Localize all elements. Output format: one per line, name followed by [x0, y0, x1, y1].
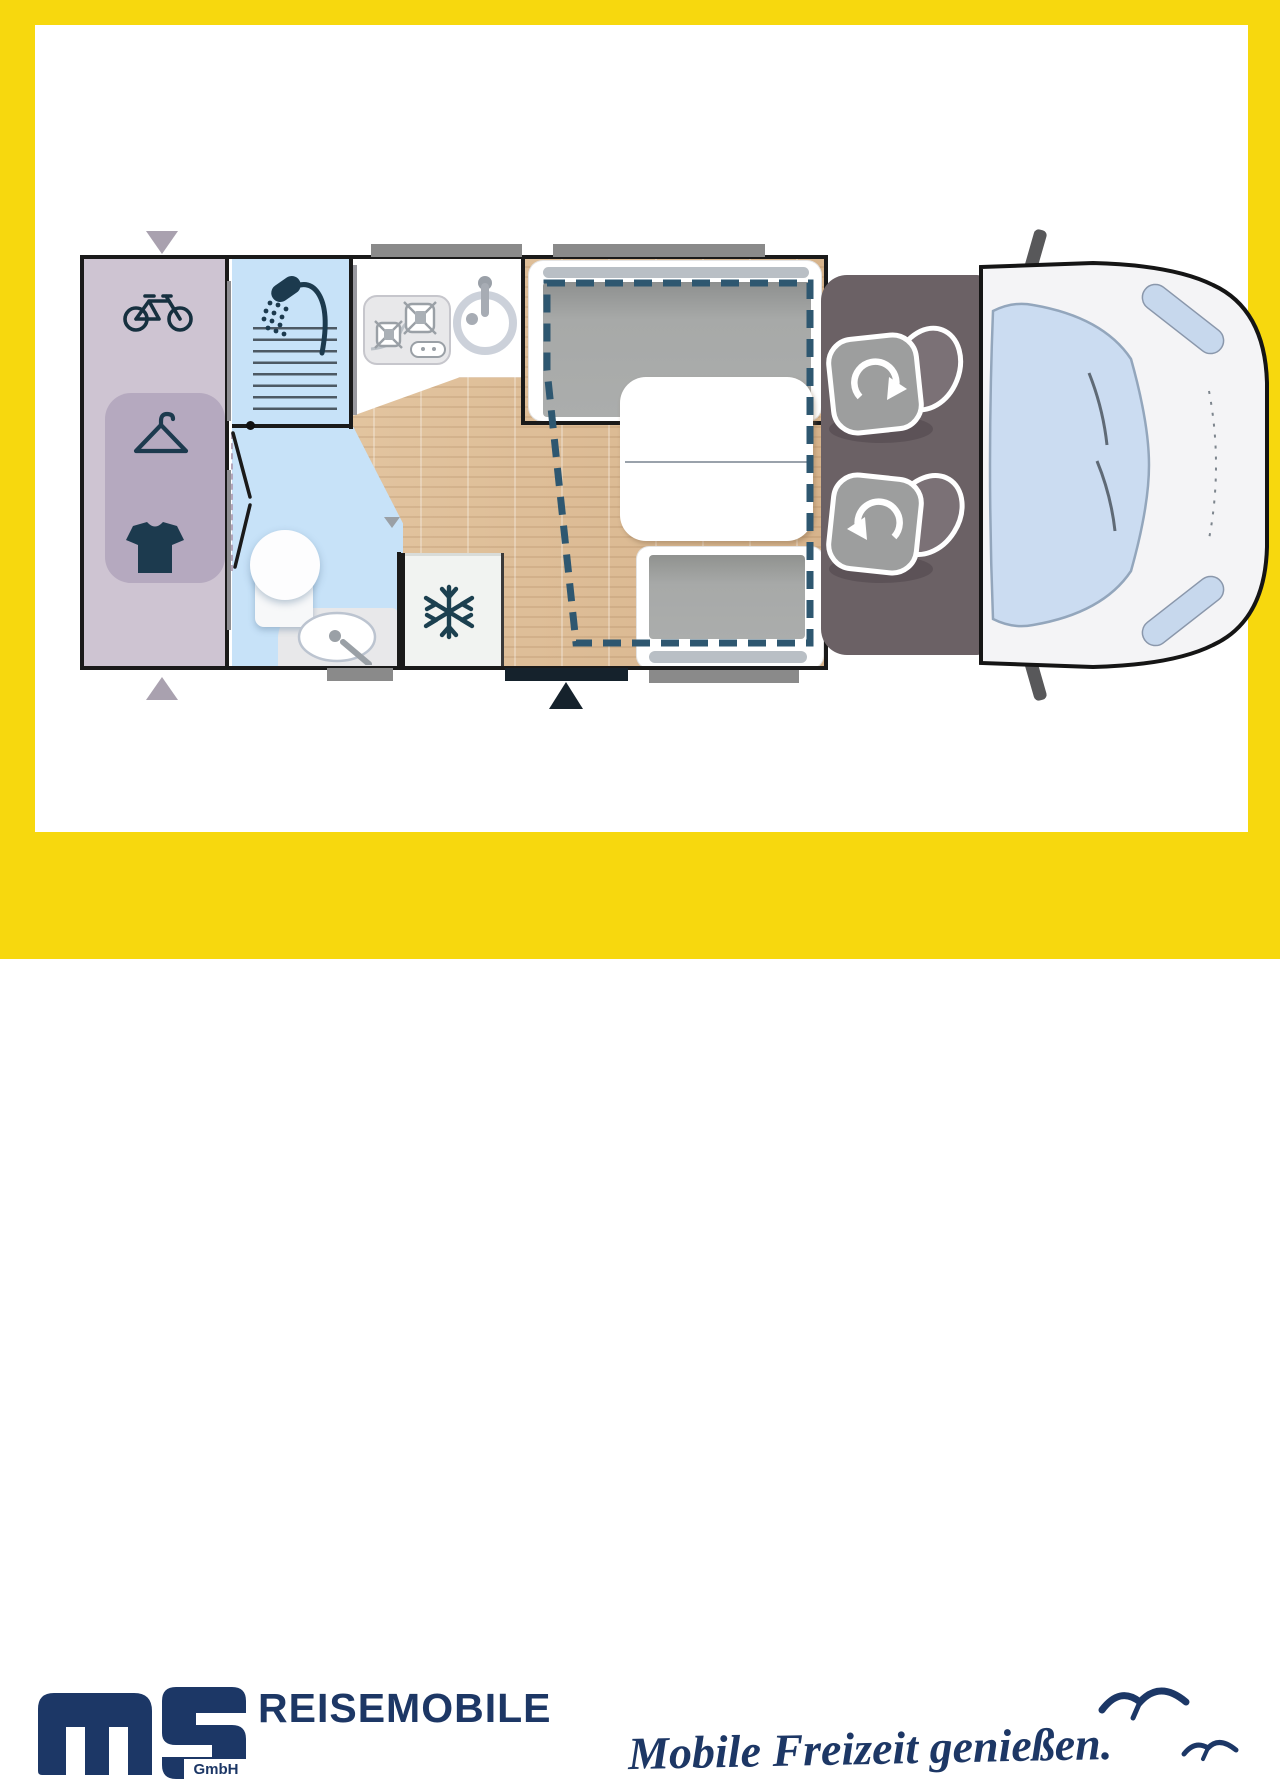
page-frame: GmbH REISEMOBILE Mobile Freizeit genieße… — [0, 0, 1280, 959]
passenger-seat — [826, 462, 976, 583]
swivel-seats — [815, 317, 985, 592]
seagull-icon — [1184, 1742, 1236, 1754]
interior-door-leaves — [221, 427, 271, 572]
coat-hanger-icon — [130, 411, 192, 459]
tshirt-icon — [126, 521, 184, 575]
seagull-icon — [1102, 1691, 1186, 1710]
logo-gmbh-label: GmbH — [184, 1759, 248, 1781]
van-front — [973, 223, 1273, 707]
driver-seat — [826, 318, 972, 443]
entry-door-arrow-icon — [549, 682, 583, 709]
seagull-icons — [1096, 1680, 1248, 1772]
washbasin-icon — [281, 611, 395, 665]
snowflake-icon — [422, 583, 476, 641]
garage-door-arrow-icon — [146, 677, 178, 700]
bicycle-icon — [123, 287, 193, 333]
content-area — [35, 25, 1248, 832]
wordmark: REISEMOBILE — [258, 1685, 551, 1732]
garage-door-arrow-icon — [146, 231, 178, 254]
windshield — [990, 304, 1149, 626]
shower-icon — [258, 261, 340, 357]
kitchen-sink-icon — [449, 271, 521, 357]
footer-band: GmbH REISEMOBILE Mobile Freizeit genieße… — [0, 832, 1280, 959]
stove-icon — [363, 295, 451, 365]
slogan: Mobile Freizeit genießen. — [627, 1717, 1112, 1780]
window-marker — [649, 670, 799, 683]
